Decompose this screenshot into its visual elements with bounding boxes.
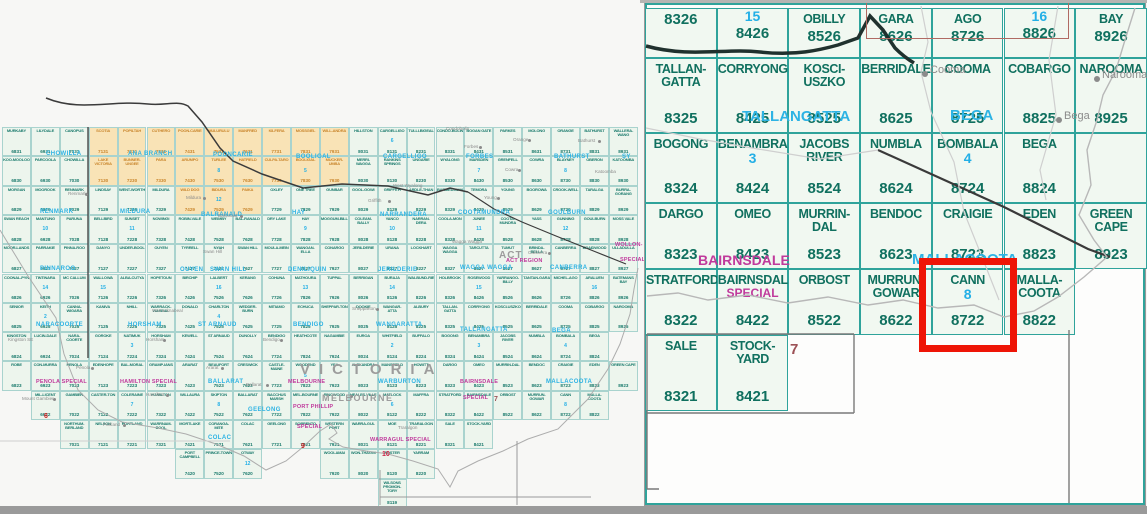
zoom-label-bairnsdale: BAIRNSDALE (698, 252, 790, 268)
town-label-bega: Bega (1064, 110, 1090, 122)
town-dot-narooma (1094, 76, 1100, 82)
bottom-edge (0, 506, 1147, 514)
zoom-label-bega: BEGA (950, 107, 993, 124)
top-edge (640, 0, 1147, 3)
screenshot-stage: MURKABY6831LILYDALE6931CANOPUS7031SCOTIA… (0, 0, 1147, 514)
town-label-narooma: Narooma (1102, 69, 1147, 81)
town-label-cooma: Cooma (930, 64, 965, 76)
zoom-label-tallangatta: TALLANGATTA (742, 108, 850, 125)
right-panel-labels: TALLANGATTABEGABAIRNSDALEMALLACOOTA7Coom… (0, 0, 1147, 514)
town-dot-cooma (922, 71, 928, 77)
town-dot-bega (1056, 117, 1062, 123)
zoom-label-7: 7 (790, 341, 798, 358)
selected-sheet-highlight-cann-8722 (919, 258, 1017, 352)
